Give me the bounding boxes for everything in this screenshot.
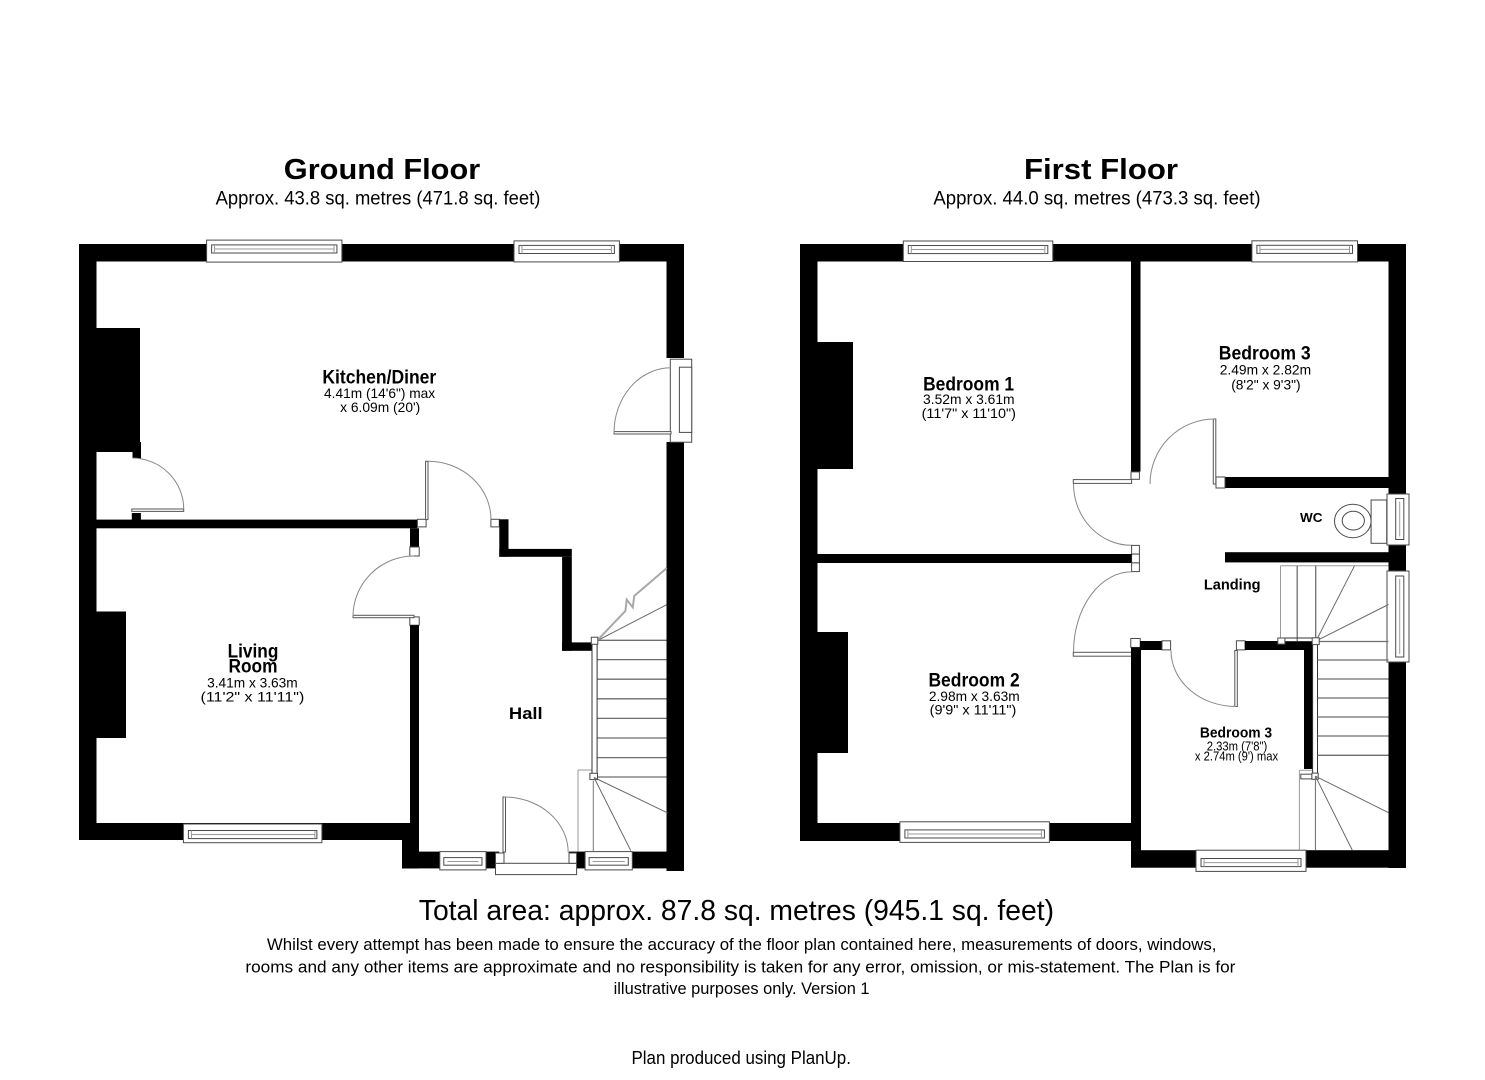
svg-text:Whilst every attempt has been: Whilst every attempt has been made to en… — [267, 935, 1217, 954]
svg-text:(8'2" x 9'3"): (8'2" x 9'3") — [1231, 376, 1300, 392]
svg-text:Approx. 44.0 sq. metres (473.3: Approx. 44.0 sq. metres (473.3 sq. feet) — [933, 189, 1260, 210]
svg-text:(11'7" x 11'10"): (11'7" x 11'10") — [922, 405, 1016, 421]
svg-text:Landing: Landing — [1204, 578, 1261, 594]
svg-text:Hall: Hall — [509, 704, 543, 723]
svg-text:(11'2" x 11'11"): (11'2" x 11'11") — [201, 689, 305, 705]
svg-text:x 2.74m (9') max: x 2.74m (9') max — [1195, 750, 1279, 764]
svg-text:Plan produced using PlanUp.: Plan produced using PlanUp. — [632, 1048, 851, 1068]
svg-text:(9'9" x 11'11"): (9'9" x 11'11") — [930, 702, 1017, 718]
svg-text:Ground Floor: Ground Floor — [284, 154, 480, 186]
svg-text:rooms and any other items are: rooms and any other items are approximat… — [245, 957, 1235, 976]
svg-text:Approx. 43.8 sq. metres (471.8: Approx. 43.8 sq. metres (471.8 sq. feet) — [216, 189, 541, 210]
svg-text:2.49m x 2.82m: 2.49m x 2.82m — [1220, 362, 1311, 378]
svg-text:First Floor: First Floor — [1024, 154, 1178, 186]
svg-text:Total area: approx. 87.8 sq. m: Total area: approx. 87.8 sq. metres (945… — [419, 895, 1054, 927]
svg-text:illustrative purposes only. Ve: illustrative purposes only. Version 1 — [614, 979, 870, 998]
svg-text:WC: WC — [1300, 510, 1323, 525]
svg-text:x 6.09m (20'): x 6.09m (20') — [340, 399, 420, 415]
